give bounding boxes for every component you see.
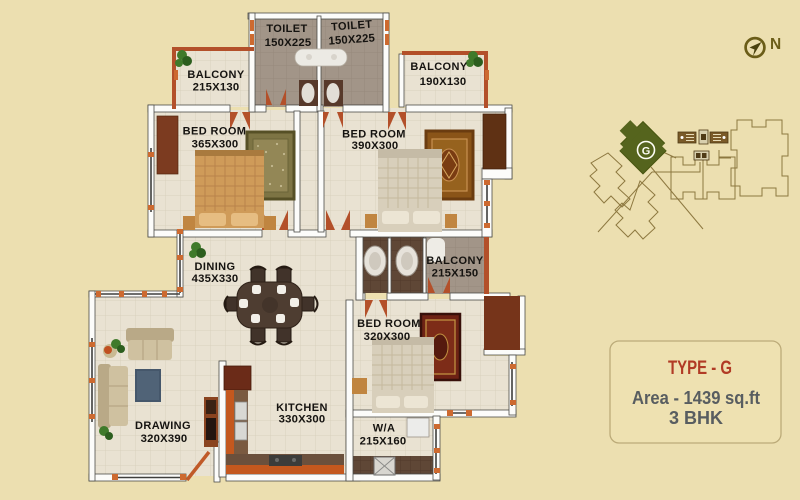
svg-text:KITCHEN: KITCHEN [276, 402, 328, 414]
svg-text:N: N [770, 36, 781, 53]
svg-text:W/A: W/A [373, 423, 396, 435]
svg-text:G: G [642, 146, 651, 158]
svg-text:320X300: 320X300 [364, 331, 411, 343]
svg-text:BED ROOM: BED ROOM [342, 129, 406, 141]
svg-text:3 BHK: 3 BHK [669, 407, 724, 428]
svg-text:BED ROOM: BED ROOM [357, 318, 421, 330]
svg-text:320X390: 320X390 [141, 433, 188, 445]
svg-text:150X225: 150X225 [265, 37, 312, 49]
svg-text:BALCONY: BALCONY [410, 61, 467, 73]
svg-text:435X330: 435X330 [192, 273, 239, 285]
svg-text:390X300: 390X300 [352, 140, 399, 152]
svg-text:215X160: 215X160 [360, 436, 407, 448]
svg-text:TYPE - G: TYPE - G [668, 358, 732, 379]
svg-text:Area - 1439 sq.ft: Area - 1439 sq.ft [632, 387, 760, 408]
svg-text:BED ROOM: BED ROOM [183, 126, 247, 138]
svg-text:BALCONY: BALCONY [187, 69, 244, 81]
svg-text:365X300: 365X300 [192, 139, 239, 151]
svg-text:BALCONY: BALCONY [426, 255, 483, 267]
svg-text:330X300: 330X300 [279, 414, 326, 426]
svg-text:190X130: 190X130 [420, 76, 467, 88]
svg-text:215X150: 215X150 [432, 268, 479, 280]
svg-text:DRAWING: DRAWING [135, 420, 191, 432]
svg-text:TOILET: TOILET [266, 23, 307, 35]
svg-text:215X130: 215X130 [193, 82, 240, 94]
svg-text:DINING: DINING [195, 261, 236, 273]
